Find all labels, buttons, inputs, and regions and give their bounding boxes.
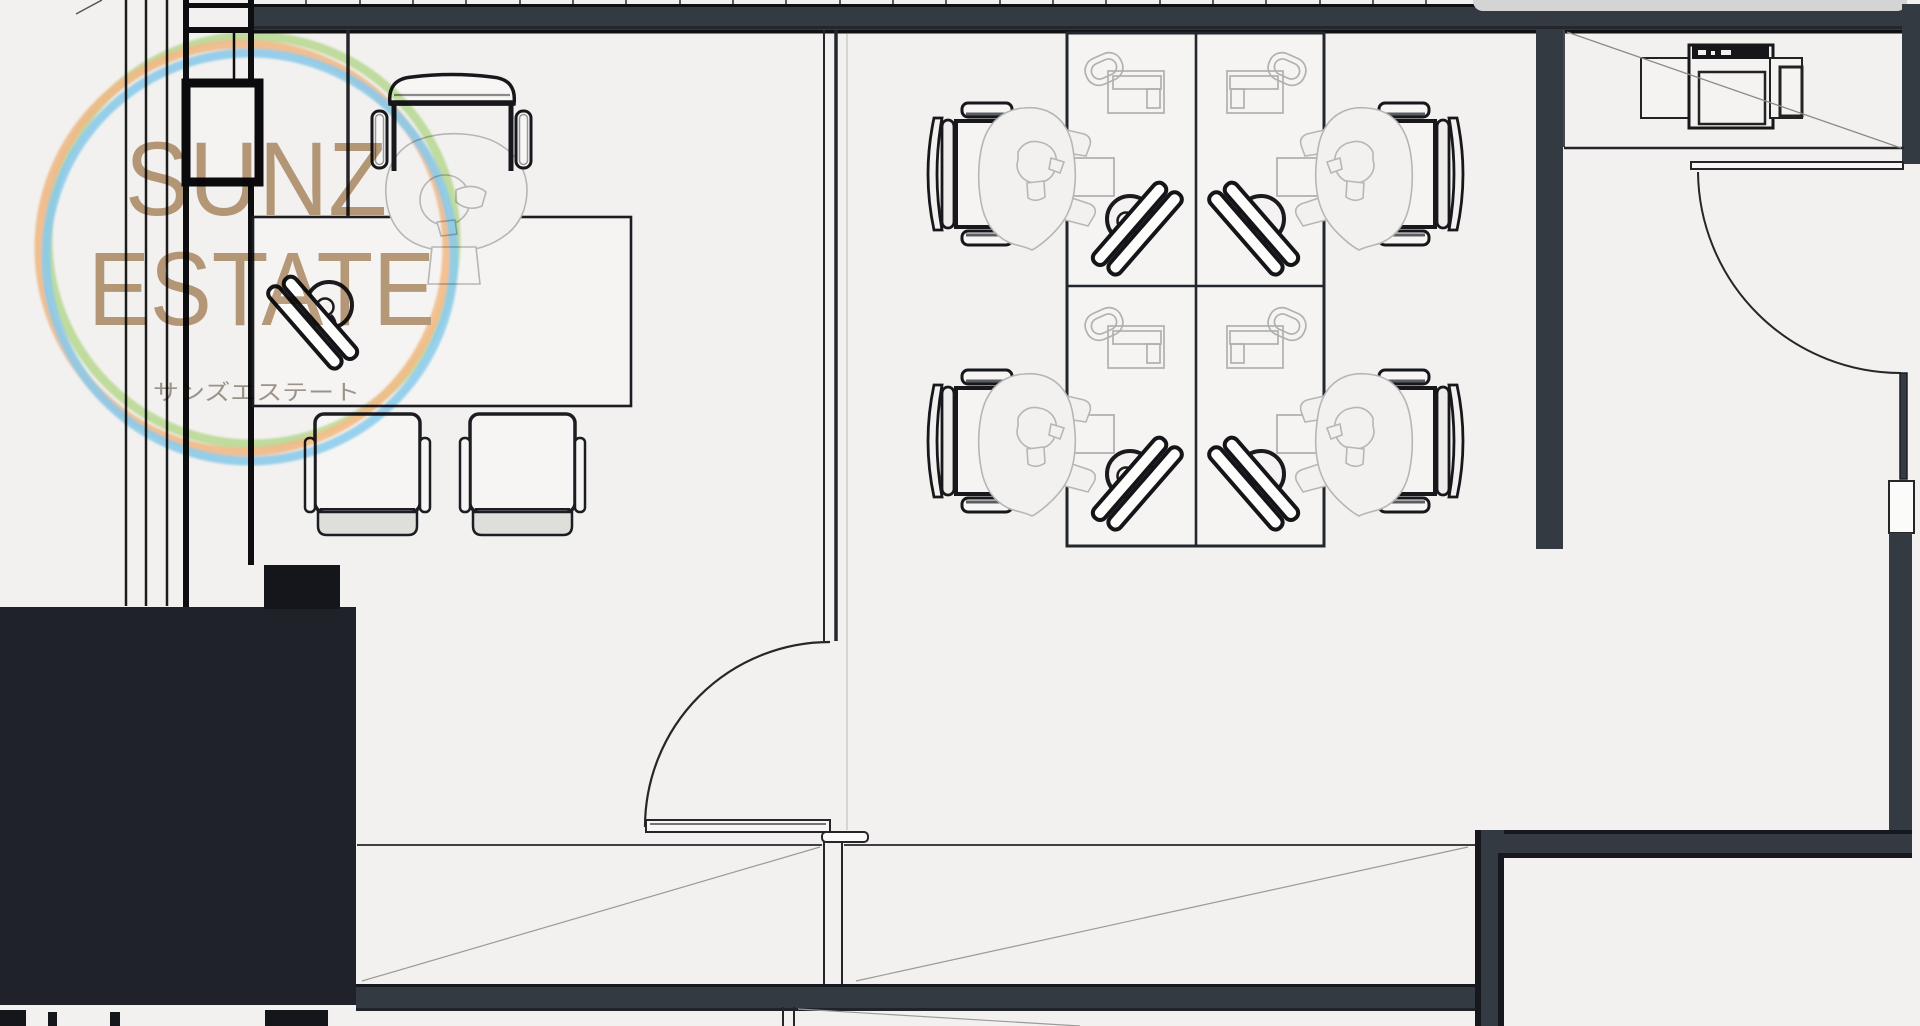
svg-text:SUNZ: SUNZ	[125, 121, 387, 238]
svg-text:ESTATE: ESTATE	[88, 231, 435, 348]
svg-text:サンズエステート: サンズエステート	[153, 380, 360, 405]
